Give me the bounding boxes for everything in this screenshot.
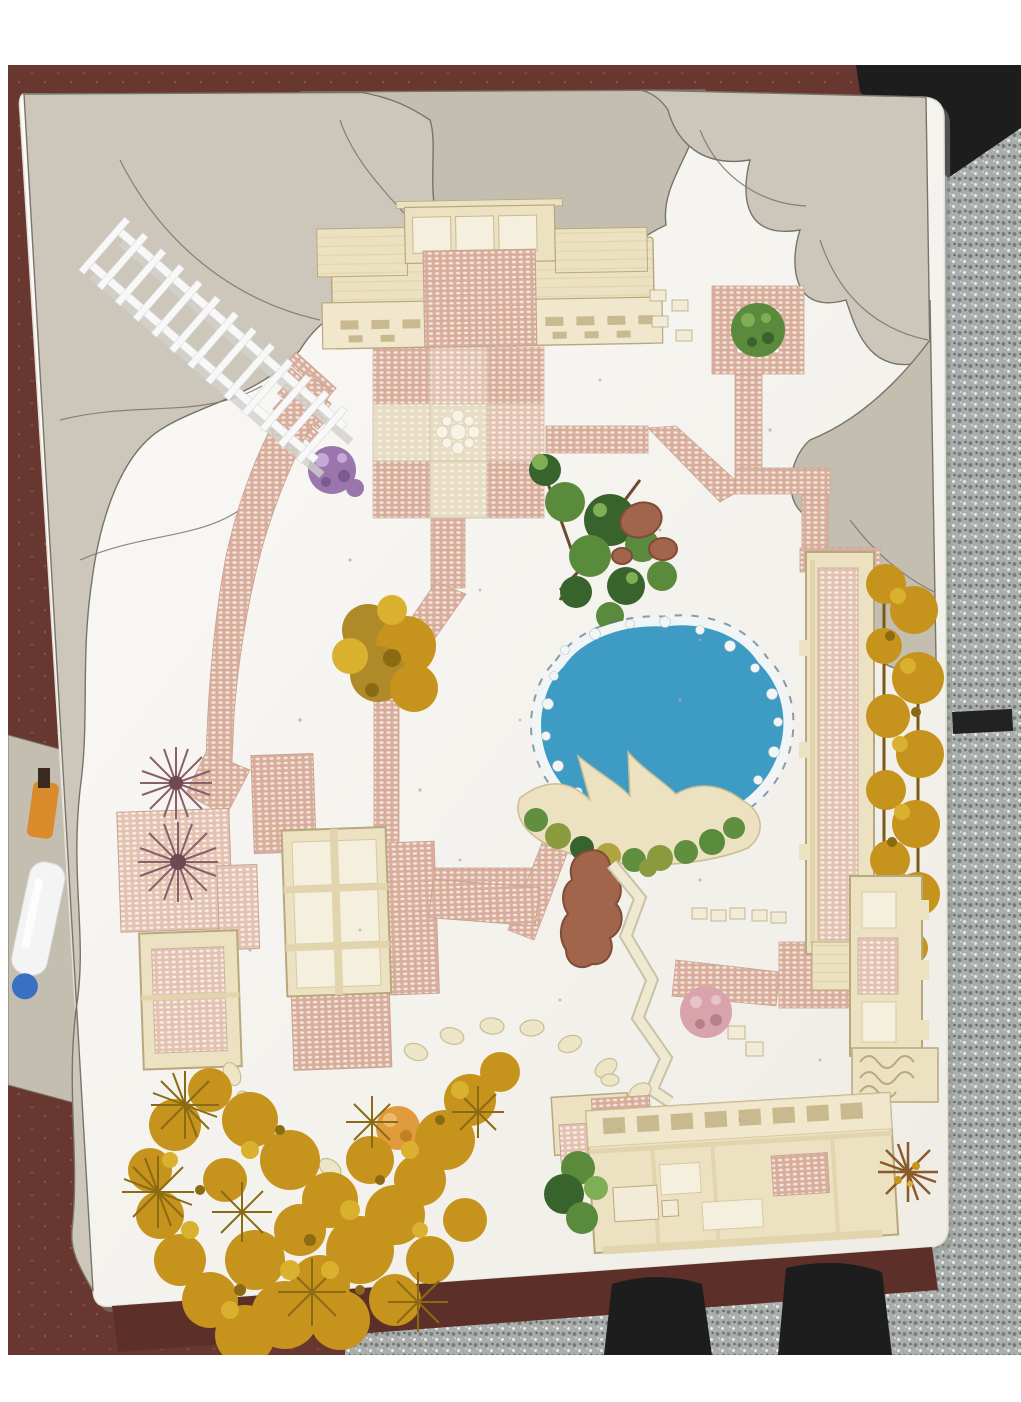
south-brick-roof-c	[771, 1153, 829, 1196]
west-frame-building	[282, 827, 392, 997]
black-stick	[952, 709, 1013, 734]
dried-flower-burst	[138, 822, 218, 902]
west-low-building	[139, 930, 242, 1069]
pavilion-brick-roof	[423, 249, 537, 347]
path-below-plaza	[431, 518, 465, 588]
pond	[518, 617, 788, 878]
brown-spiky-tree	[878, 1142, 938, 1202]
pavilion-gallery-openings	[413, 215, 538, 253]
checkerboard-plaza	[373, 347, 544, 518]
foot-right	[778, 1263, 892, 1355]
pavilion-wing-left	[317, 227, 408, 277]
dried-flower-burst	[140, 747, 212, 819]
photo-of-garden-model	[0, 0, 1021, 1402]
path-elbow-h	[735, 468, 830, 494]
west-terrace-lower	[291, 993, 392, 1070]
foot-left	[604, 1277, 712, 1355]
loop-shrub	[731, 303, 785, 357]
south-building	[551, 1077, 898, 1257]
pink-shrub	[680, 986, 732, 1038]
pavilion-wing-right	[555, 227, 648, 273]
path-east-of-plaza	[546, 426, 648, 453]
path-loop-stem	[735, 374, 762, 476]
